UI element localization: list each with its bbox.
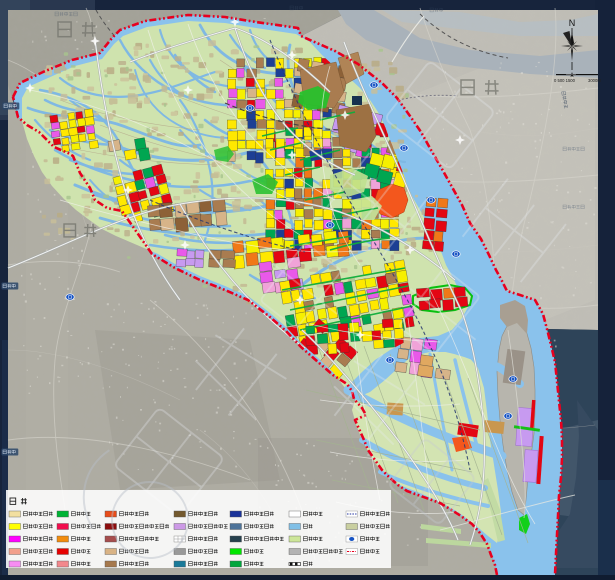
svg-text:0 500 1500: 0 500 1500 xyxy=(554,78,576,83)
svg-text:N: N xyxy=(569,18,576,28)
svg-text:3000M: 3000M xyxy=(588,78,601,83)
